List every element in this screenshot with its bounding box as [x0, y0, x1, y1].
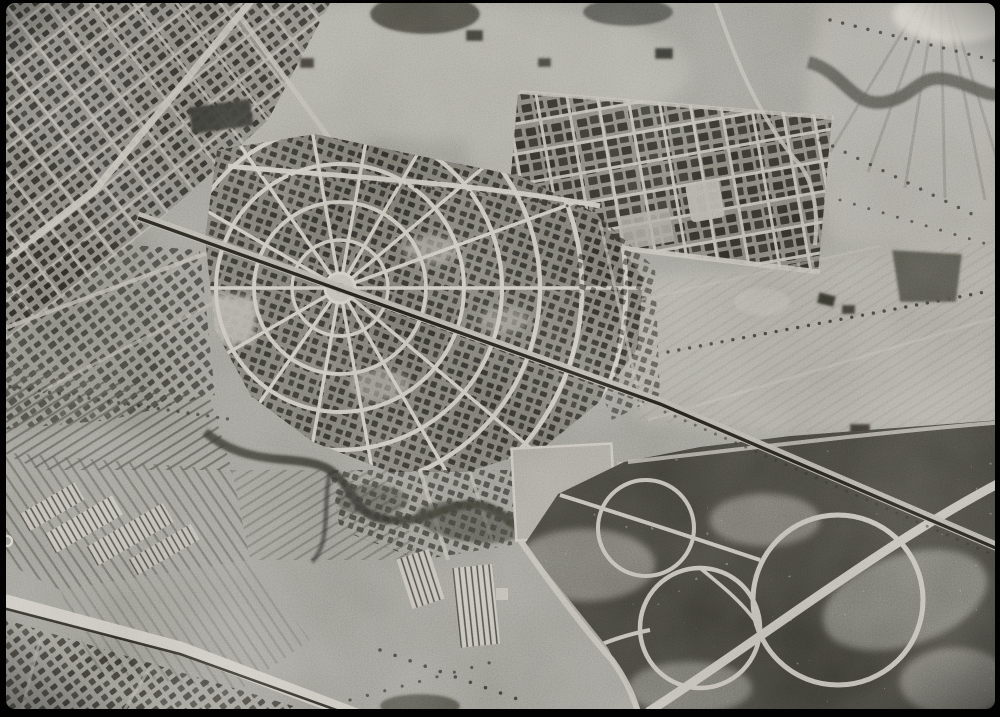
- photo-content: [0, 0, 1000, 717]
- vignette: [0, 0, 1000, 717]
- photo-frame: [0, 0, 1000, 717]
- aerial-photo: [0, 0, 1000, 717]
